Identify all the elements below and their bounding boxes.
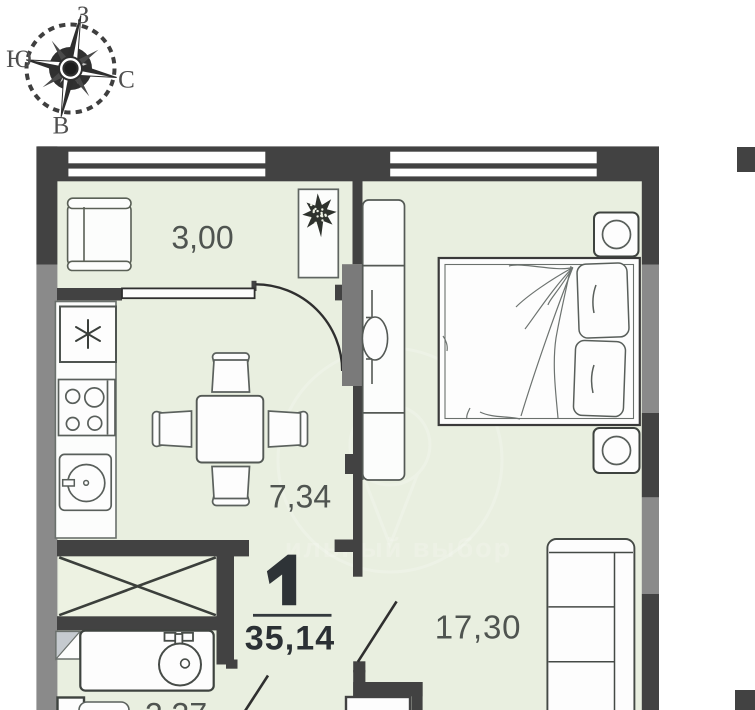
svg-text:Ю: Ю xyxy=(6,46,32,73)
svg-text:17,30: 17,30 xyxy=(435,608,522,645)
svg-text:В: В xyxy=(53,113,70,140)
svg-text:2,37: 2,37 xyxy=(145,697,207,710)
svg-text:35,14: 35,14 xyxy=(245,619,336,657)
svg-text:3,00: 3,00 xyxy=(171,220,233,256)
svg-text:З: З xyxy=(77,2,90,29)
svg-text:ильный выбор: ильный выбор xyxy=(285,533,512,563)
svg-text:7,34: 7,34 xyxy=(269,479,331,515)
svg-text:С: С xyxy=(118,67,135,94)
